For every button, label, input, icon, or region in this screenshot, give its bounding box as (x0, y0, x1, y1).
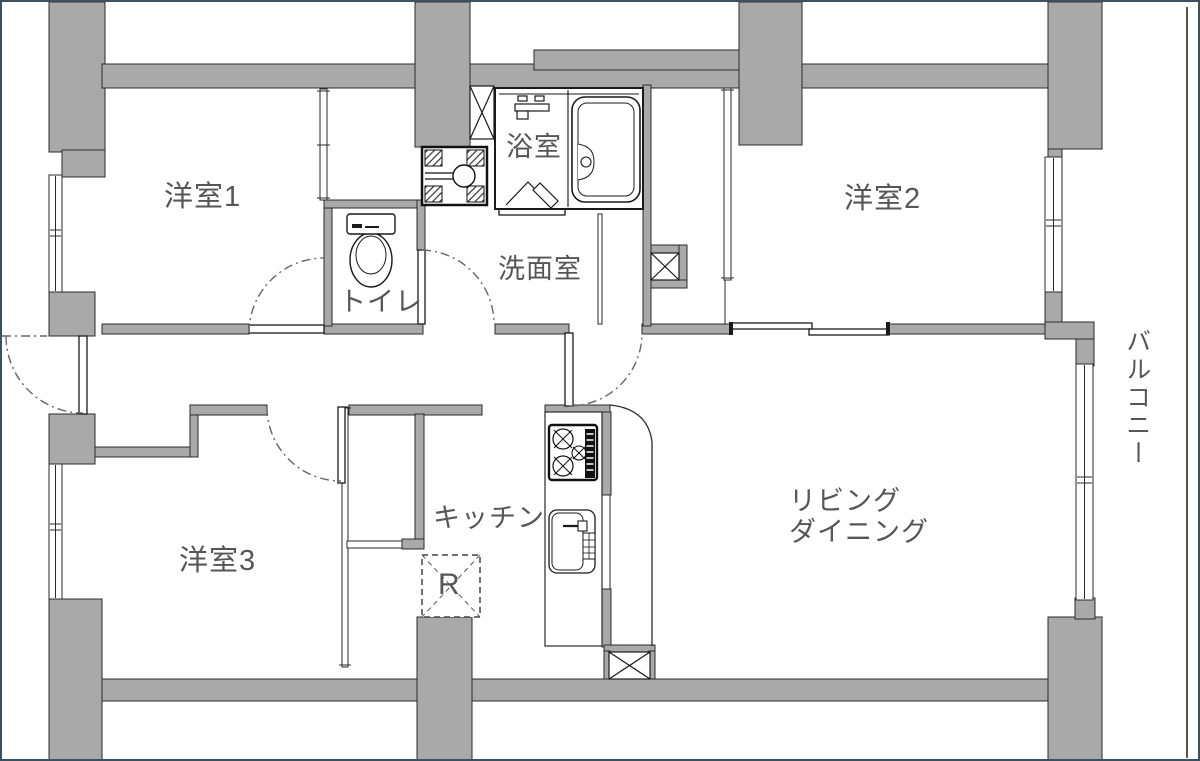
kitchen-sink-icon (549, 510, 595, 573)
floor-plan-drawing (2, 2, 1200, 761)
label-living-line2: ダイニング (789, 517, 929, 547)
pillar-top-left (49, 2, 105, 152)
pillar-top-mid-right (739, 2, 802, 145)
pipe-space-kitchen-icon (609, 652, 650, 679)
window-living-east (1076, 364, 1093, 600)
gas-stove-icon (549, 425, 597, 480)
living-door-leaf (565, 333, 573, 406)
pillar-bottom-mid (417, 617, 472, 760)
label-living-dining: リビングダイニング (789, 486, 929, 548)
living-door-arc (569, 333, 642, 406)
bathtub (572, 97, 640, 202)
entrance-door-leaf (79, 336, 87, 414)
label-balcony: バルコニー (1122, 328, 1151, 468)
closet-slider-room2 (721, 88, 734, 324)
toilet-fixture (347, 214, 395, 287)
label-washroom: 洗面室 (498, 254, 582, 285)
label-bathroom: 浴室 (506, 132, 562, 163)
room3-door-arc (267, 407, 341, 481)
room3-door-leaf (338, 407, 345, 483)
entrance-door-arc (6, 336, 83, 413)
window-room2-east (1045, 157, 1062, 292)
washroom-door-arc (422, 250, 494, 324)
label-living-line1: リビング (789, 486, 901, 516)
pillar-top-mid-left (415, 2, 470, 147)
pillar-bottom-left (49, 599, 102, 760)
partition-washroom (598, 214, 602, 324)
label-room2: 洋室2 (844, 183, 921, 216)
south-wall (102, 679, 1048, 701)
sliding-door-panel-1 (732, 323, 812, 329)
counter-curve (610, 405, 652, 646)
pipe-space-mid-icon (651, 253, 679, 280)
floor-plan: 洋室1 洋室2 洋室3 浴室 洗面室 トイレ キッチン リビングダイニング バル… (0, 0, 1200, 761)
window-room3-west (49, 464, 62, 599)
label-kitchen: キッチン (433, 503, 545, 534)
room1-door-leaf (249, 325, 324, 333)
room1-door-arc (249, 258, 324, 333)
duct-box-top-icon (470, 86, 494, 139)
label-room3: 洋室3 (179, 545, 256, 578)
doors (2, 207, 890, 483)
kitchen-shelf-line (347, 541, 402, 548)
window-room1-west (49, 175, 62, 292)
pillar-bottom-right (1048, 617, 1102, 760)
sliding-door-panel-2 (809, 329, 889, 335)
kitchen-counter (545, 405, 652, 646)
label-toilet: トイレ (339, 287, 423, 318)
meter-box-icon (422, 147, 487, 205)
label-room1: 洋室1 (164, 181, 241, 214)
pillar-top-right (1048, 2, 1102, 149)
label-refrigerator: R (438, 568, 461, 603)
closet-slider-room1 (317, 89, 330, 200)
